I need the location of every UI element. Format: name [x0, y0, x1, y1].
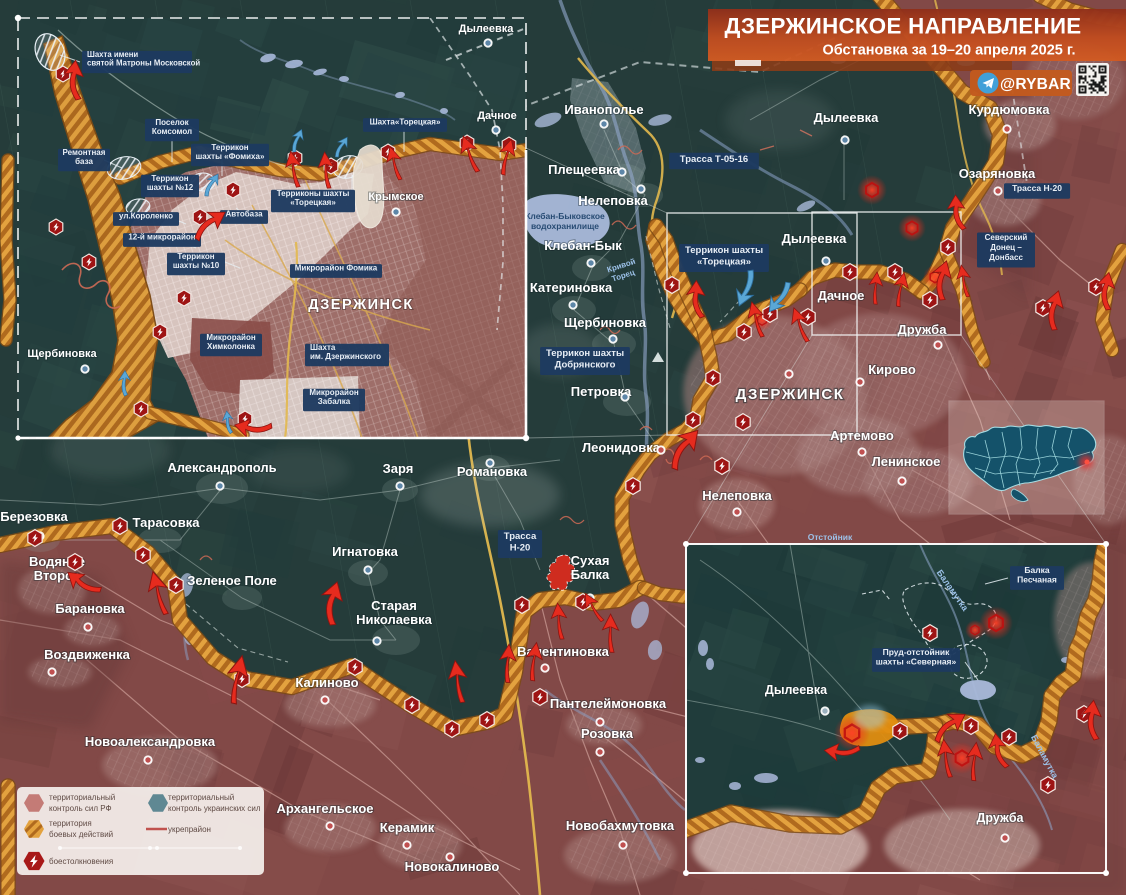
svg-text:ДЗЕРЖИНСКОЕ НАПРАВЛЕНИЕ: ДЗЕРЖИНСКОЕ НАПРАВЛЕНИЕ: [725, 14, 1082, 39]
svg-text:Песчаная: Песчаная: [1017, 574, 1057, 584]
svg-text:Нелеповка: Нелеповка: [702, 488, 772, 503]
svg-text:Балка: Балка: [571, 567, 610, 582]
svg-text:Щербиновка: Щербиновка: [27, 348, 97, 360]
svg-text:Калиново: Калиново: [295, 675, 358, 690]
svg-text:шахты «Северная»: шахты «Северная»: [876, 656, 957, 666]
svg-text:шахты «Фомиха»: шахты «Фомиха»: [196, 152, 265, 161]
svg-text:@RYBAR: @RYBAR: [1000, 76, 1071, 93]
svg-text:Крымское: Крымское: [368, 191, 423, 203]
svg-text:Кирово: Кирово: [868, 362, 916, 377]
svg-text:Дылеевка: Дылеевка: [459, 23, 515, 35]
svg-text:Новокалиново: Новокалиново: [405, 859, 500, 874]
svg-text:Плещеевка: Плещеевка: [548, 162, 621, 177]
svg-text:Клебан-Бык: Клебан-Бык: [544, 238, 622, 253]
svg-text:Автобаза: Автобаза: [225, 209, 263, 218]
svg-text:Донец –: Донец –: [990, 243, 1022, 252]
svg-text:святой Матроны Московской: святой Матроны Московской: [87, 59, 200, 68]
svg-text:Микрорайон Фомика: Микрорайон Фомика: [295, 263, 378, 272]
svg-text:ДЗЕРЖИНСК: ДЗЕРЖИНСК: [308, 297, 414, 313]
svg-text:база: база: [75, 157, 93, 166]
svg-text:Тарасовка: Тарасовка: [133, 515, 201, 530]
svg-text:боевых действий: боевых действий: [49, 830, 113, 839]
svg-text:Катериновка: Катериновка: [530, 280, 613, 295]
svg-text:Поселок: Поселок: [155, 118, 189, 127]
svg-text:Березовка: Березовка: [0, 509, 68, 524]
svg-text:Дачное: Дачное: [818, 288, 865, 303]
svg-text:Новоалександровка: Новоалександровка: [85, 734, 216, 749]
svg-text:Новобахмутовка: Новобахмутовка: [566, 818, 675, 833]
svg-text:территориальный: территориальный: [49, 793, 115, 802]
svg-text:Шахта: Шахта: [310, 343, 336, 352]
svg-text:Нелеповка: Нелеповка: [578, 193, 648, 208]
svg-text:Террикон шахты: Террикон шахты: [546, 348, 624, 359]
svg-text:укрепрайон: укрепрайон: [168, 825, 211, 834]
svg-text:Микрорайон: Микрорайон: [206, 333, 256, 342]
svg-text:Дылеевка: Дылеевка: [782, 231, 847, 246]
svg-text:Дружба: Дружба: [976, 811, 1024, 825]
svg-text:«Торецкая»: «Торецкая»: [290, 198, 336, 207]
svg-text:боестолкновения: боестолкновения: [49, 857, 113, 866]
svg-text:Террикон: Террикон: [177, 252, 214, 261]
svg-text:ДЗЕРЖИНСК: ДЗЕРЖИНСК: [736, 386, 845, 403]
svg-text:Сухая: Сухая: [571, 553, 610, 568]
svg-text:Архангельское: Архангельское: [276, 801, 373, 816]
svg-text:Воздвиженка: Воздвиженка: [44, 647, 130, 662]
svg-text:Заря: Заря: [383, 461, 414, 476]
svg-text:Дружба: Дружба: [898, 322, 948, 337]
svg-text:Ремонтная: Ремонтная: [63, 148, 106, 157]
svg-text:Александрополь: Александрополь: [167, 460, 276, 475]
svg-text:Керамик: Керамик: [380, 820, 435, 835]
svg-text:Игнатовка: Игнатовка: [332, 544, 398, 559]
svg-text:Обстановка за 19–20 апреля 202: Обстановка за 19–20 апреля 2025 г.: [823, 43, 1076, 59]
svg-text:шахты №10: шахты №10: [173, 261, 220, 270]
svg-text:Террикон шахты: Террикон шахты: [685, 245, 763, 256]
svg-text:Забалка: Забалка: [318, 397, 351, 406]
svg-text:«Торецкая»: «Торецкая»: [697, 257, 751, 268]
svg-text:ул.Короленко: ул.Короленко: [119, 211, 173, 220]
svg-text:Трасса: Трасса: [504, 531, 537, 542]
svg-text:Курдюмовка: Курдюмовка: [969, 102, 1051, 117]
svg-text:Шахта«Торецкая»: Шахта«Торецкая»: [370, 117, 441, 126]
svg-text:Террикон: Террикон: [211, 143, 248, 152]
svg-text:Добрянского: Добрянского: [555, 360, 616, 371]
svg-text:Северский: Северский: [985, 233, 1028, 242]
svg-text:Терриконы шахты: Терриконы шахты: [277, 189, 350, 198]
svg-text:Ленинское: Ленинское: [872, 454, 941, 469]
svg-text:Артемово: Артемово: [830, 428, 894, 443]
svg-text:Террикон: Террикон: [151, 174, 188, 183]
svg-text:Трасса Н-20: Трасса Н-20: [1012, 183, 1062, 193]
svg-text:12-й микрорайон: 12-й микрорайон: [128, 232, 195, 241]
svg-text:территория: территория: [49, 819, 92, 828]
svg-text:Розовка: Розовка: [581, 726, 634, 741]
svg-text:Зеленое Поле: Зеленое Поле: [187, 573, 277, 588]
svg-text:Щербиновка: Щербиновка: [564, 315, 647, 330]
svg-text:Озаряновка: Озаряновка: [959, 166, 1036, 181]
svg-text:Трасса Т-05-16: Трасса Т-05-16: [680, 154, 748, 165]
svg-text:контроль украинских сил: контроль украинских сил: [168, 804, 261, 813]
svg-text:Дылеевка: Дылеевка: [814, 110, 879, 125]
svg-text:Пантелеймоновка: Пантелеймоновка: [550, 696, 667, 711]
svg-text:Иванополье: Иванополье: [564, 102, 643, 117]
svg-text:Отстойник: Отстойник: [808, 532, 853, 542]
svg-text:Дачное: Дачное: [477, 110, 517, 122]
svg-text:территориальный: территориальный: [168, 793, 234, 802]
svg-text:Барановка: Барановка: [55, 601, 125, 616]
svg-text:Николаевка: Николаевка: [356, 612, 433, 627]
svg-text:Дылеевка: Дылеевка: [765, 683, 828, 697]
svg-text:Клебан-Быковское: Клебан-Быковское: [525, 211, 605, 221]
svg-text:шахты №12: шахты №12: [147, 183, 194, 192]
svg-text:Н-20: Н-20: [510, 543, 531, 554]
svg-text:Микрорайон: Микрорайон: [309, 388, 359, 397]
svg-text:Комсомол: Комсомол: [152, 127, 192, 136]
svg-text:Химколонка: Химколонка: [207, 342, 255, 351]
svg-text:Донбасс: Донбасс: [989, 253, 1023, 262]
svg-text:Старая: Старая: [371, 598, 417, 613]
svg-text:им. Дзержинского: им. Дзержинского: [310, 352, 381, 361]
svg-text:Леонидовка: Леонидовка: [582, 440, 661, 455]
svg-text:контроль сил РФ: контроль сил РФ: [49, 804, 112, 813]
svg-text:водохранилище: водохранилище: [531, 221, 599, 231]
